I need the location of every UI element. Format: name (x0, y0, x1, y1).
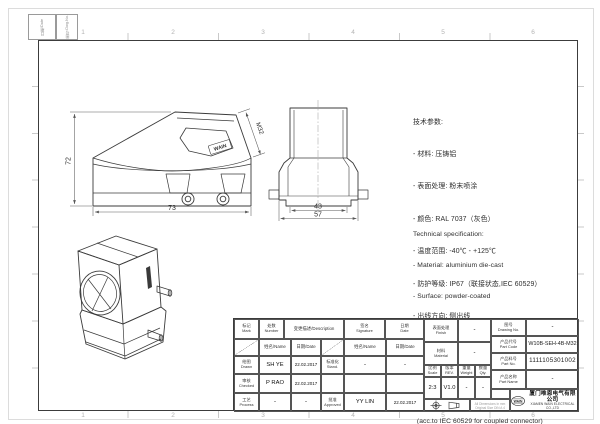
tb-description-header: 变更描述/Description (284, 319, 344, 339)
tb-drawn-date: 22.02.2017 (291, 356, 321, 374)
tb-name-subheader: 姓名/Name (259, 339, 291, 356)
tb-material-label: 材料Material (424, 342, 458, 365)
tb-mark-header: 标记Mark (234, 319, 259, 339)
tb-checked-date: 22.02.2017 (291, 374, 321, 393)
spec-en-line: - Material: aluminium die-cast (413, 261, 577, 271)
dim-outer-57: 57 (314, 212, 322, 219)
tb-part-name-label: 产品名称Part Name (491, 370, 526, 389)
tb-stand-label: 标准化Stand. (321, 356, 344, 374)
wain-logo: WAIN (511, 395, 525, 407)
zone-ticks-top (38, 33, 578, 40)
title-block: 标记Mark 处数Number 变更描述/Description 签名Signa… (233, 318, 578, 411)
tb-part-code-label: 产品代号Part Code (491, 336, 526, 353)
tb-part-code-value: W10B-SEH-4B-M32 (526, 336, 579, 353)
tb-number-header: 处数Number (259, 319, 284, 339)
company-name-en: XIAMEN WAIN ELECTRICAL CO.,LTD (527, 403, 578, 410)
tb-stand-name: - (344, 356, 386, 374)
tb-checked-name: P RAO (259, 374, 291, 393)
first-angle-projection-icon (427, 400, 467, 411)
side-view (269, 100, 368, 213)
tb-dimensions-note: All Dimensions in mm Original Size DIN A… (470, 399, 510, 412)
tb-process-date: - (291, 393, 321, 412)
tb-empty-cell (386, 374, 424, 393)
tb-material-value: - (458, 342, 491, 365)
front-view: WAIN (93, 112, 251, 206)
tb-diagonal-cell (321, 339, 344, 356)
tb-qty-header: 数量Qty. (475, 365, 491, 377)
spec-cn-title: 技术参数: (413, 118, 577, 129)
tb-name-subheader: 姓名/Name (344, 339, 386, 356)
tb-part-name-value: - (526, 370, 579, 389)
corner-box-dwg-label: 图号 Dwg.No. (65, 15, 69, 38)
tb-signature-header: 签名Signature (344, 319, 385, 339)
tb-drawn-name: SH YE (259, 356, 291, 374)
tb-empty-cell (321, 374, 344, 393)
spec-cn-line: - 表面处理: 粉末喷涂 (413, 182, 577, 193)
tb-drawing-no-label: 图号Drawing No. (491, 319, 526, 336)
tb-scale-value: 2:3 (424, 377, 441, 399)
tb-weight-header: 重量Weight (458, 365, 475, 377)
tb-company-cell: WAIN 厦门唯恩电气有限公司 XIAMEN WAIN ELECTRICAL C… (510, 389, 579, 412)
tb-approved-name: YY LIN (344, 393, 386, 412)
tb-rev-header: 版本REV. (441, 365, 458, 377)
tb-part-no-value: 1111105301002 (526, 353, 579, 370)
tb-stand-date: - (386, 356, 424, 374)
engineering-drawing-page: 1 2 3 4 5 6 1 2 3 4 5 6 日期/Date 图号 Dwg.N… (0, 0, 600, 424)
tb-part-no-label: 产品料号Part No. (491, 353, 526, 370)
tb-empty-cell (491, 389, 510, 399)
tb-weight-value: - (458, 377, 475, 399)
wain-logo-text: WAIN (514, 399, 523, 403)
tb-rev-value: V1.0 (441, 377, 458, 399)
spec-cn-line: - 材料: 压铸铝 (413, 150, 577, 161)
tb-diagonal-cell (234, 339, 259, 356)
tb-finish-label: 表面处理Finish (424, 319, 458, 342)
dim-height-72: 72 (66, 157, 73, 165)
tb-checked-label: 审核Checked (234, 374, 259, 393)
spec-en-line: (acc.to IEC 60529 for coupled connector) (413, 417, 577, 424)
tb-qty-value: - (475, 377, 491, 399)
side-view-labels: 43 57 (314, 204, 322, 219)
dim-inner-43: 43 (314, 204, 322, 211)
corner-box-dwg-no: 图号 Dwg.No. (56, 14, 78, 40)
tb-date-header: 日期Date (385, 319, 424, 339)
isometric-view (76, 236, 171, 359)
tb-date-subheader: 日期/Date (291, 339, 321, 356)
corner-box-date: 日期/Date (28, 14, 56, 40)
thread-label-m32: M32 (254, 122, 265, 136)
tb-projection-symbols (424, 399, 470, 412)
tb-drawing-no-value: - (526, 319, 579, 336)
tb-process-name: - (259, 393, 291, 412)
tb-process-label: 工艺Process (234, 393, 259, 412)
front-view-dimensions (70, 109, 265, 216)
spec-en-title: Technical specification: (413, 230, 577, 240)
corner-box-date-label: 日期/Date (40, 19, 44, 36)
tb-approved-date: 22.02.2017 (386, 393, 424, 412)
tb-date-subheader: 日期/Date (386, 339, 424, 356)
tb-finish-value: - (458, 319, 491, 342)
product-logo-sticker: WAIN (208, 139, 232, 154)
spec-en-line: - Surface: powder-coated (413, 292, 577, 302)
tb-empty-cell (344, 374, 386, 393)
tb-drawn-label: 绘图Drawn (234, 356, 259, 374)
dim-width-73: 73 (168, 205, 176, 212)
tb-approved-label: 批准Approved (321, 393, 344, 412)
tb-scale-header: 比例Scale (424, 365, 441, 377)
